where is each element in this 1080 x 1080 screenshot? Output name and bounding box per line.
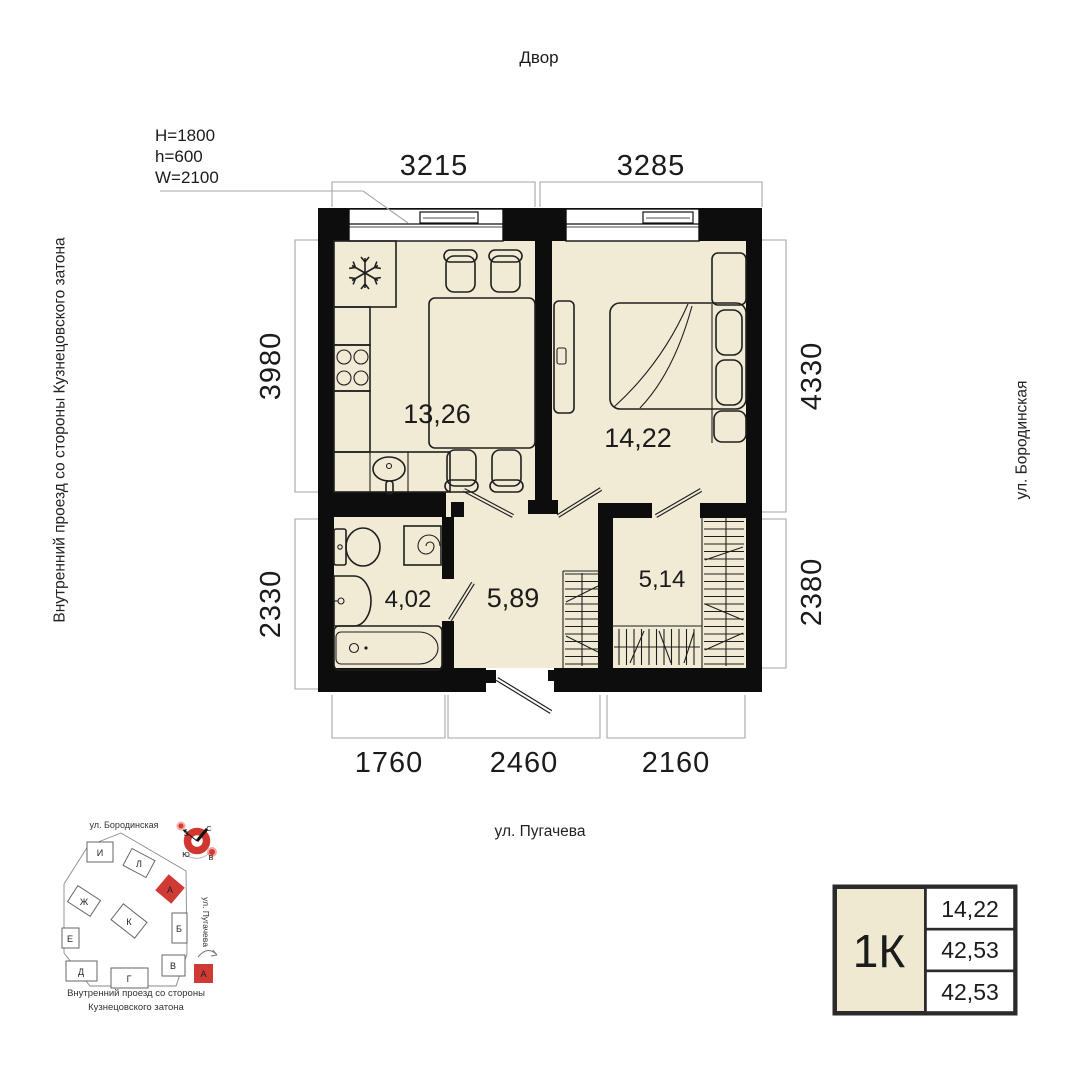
card-type-label: 1К: [853, 925, 906, 977]
bedroom-window: [566, 209, 699, 241]
arrow-icon: [198, 950, 217, 957]
wardrobe-bottom-rack: [612, 626, 702, 665]
site-caption-2: Кузнецовского затона: [88, 1002, 184, 1013]
hall-coat-rack: [563, 571, 600, 668]
courtyard-label: Двор: [519, 48, 558, 67]
bldg-g: Г: [127, 974, 132, 984]
site-plan: ул. Бородинская ул. Пугачева Внутренний …: [62, 820, 217, 1013]
floorplan-drawing: 13,26 14,22 4,02 5,89 5,14 3215 3285 398…: [0, 0, 1080, 1080]
compass-south: Ю: [182, 850, 190, 859]
bldg-l: Л: [136, 859, 142, 869]
bedroom-area-label: 14,22: [604, 423, 672, 453]
dim-left-1: 3980: [255, 332, 287, 401]
site-street-right: ул. Пугачева: [201, 897, 211, 947]
window-vent: [420, 212, 478, 223]
bldg-d: Д: [78, 967, 84, 977]
bldg-k: К: [126, 917, 132, 927]
street-pugacheva-label: ул. Пугачева: [495, 823, 586, 840]
dim-bottom-3: 2160: [642, 747, 711, 779]
dim-top-1: 3215: [400, 150, 469, 182]
bldg-a-square: А: [200, 969, 206, 979]
floorplan-page: 13,26 14,22 4,02 5,89 5,14 3215 3285 398…: [0, 0, 1080, 1080]
dim-right-2: 2380: [796, 558, 828, 627]
dim-right-1: 4330: [796, 342, 828, 411]
window-spec-hh: h=600: [155, 147, 203, 166]
dim-top-2: 3285: [617, 150, 686, 182]
apartment-plan: 13,26 14,22 4,02 5,89 5,14: [318, 208, 762, 712]
hall-area-label: 5,89: [487, 583, 540, 613]
compass-north: С: [206, 824, 212, 833]
street-borodinskaya-label: ул. Бородинская: [1014, 381, 1031, 500]
wardrobe-side-rack: [702, 517, 744, 668]
card-full-area: 42,53: [941, 979, 999, 1005]
site-street-top: ул. Бородинская: [89, 820, 158, 830]
street-inner-drive-label: Внутренний проезд со стороны Кузнецовско…: [52, 237, 69, 623]
window-spec-h: H=1800: [155, 126, 215, 145]
dim-left-2: 2330: [255, 570, 287, 639]
kitchen-area-label: 13,26: [403, 399, 471, 429]
bath-area-label: 4,02: [385, 586, 432, 613]
bldg-e: Е: [67, 934, 73, 944]
window-vent: [643, 212, 693, 223]
dim-bottom-2: 2460: [490, 747, 559, 779]
wardrobe-area-label: 5,14: [639, 566, 686, 593]
site-caption-1: Внутренний проезд со стороны: [67, 988, 205, 999]
card-living-area: 14,22: [941, 896, 999, 922]
apartment-card: 1К 14,22 42,53 42,53: [834, 886, 1016, 1014]
window-spec-w: W=2100: [155, 168, 219, 187]
compass-west: З: [184, 829, 189, 838]
bldg-a-diamond: А: [167, 885, 173, 895]
compass-icon: З С Ю В: [177, 822, 218, 863]
card-total-area: 42,53: [941, 937, 999, 963]
bldg-v: В: [170, 961, 176, 971]
entry-door: [486, 668, 558, 712]
dim-bottom-1: 1760: [355, 747, 424, 779]
window-spec: H=1800 h=600 W=2100: [155, 126, 219, 187]
compass-east: В: [208, 853, 213, 862]
bldg-b: Б: [176, 924, 182, 934]
bldg-i: И: [97, 848, 103, 858]
kitchen-window: [349, 209, 503, 241]
bldg-zh: Ж: [80, 897, 89, 907]
